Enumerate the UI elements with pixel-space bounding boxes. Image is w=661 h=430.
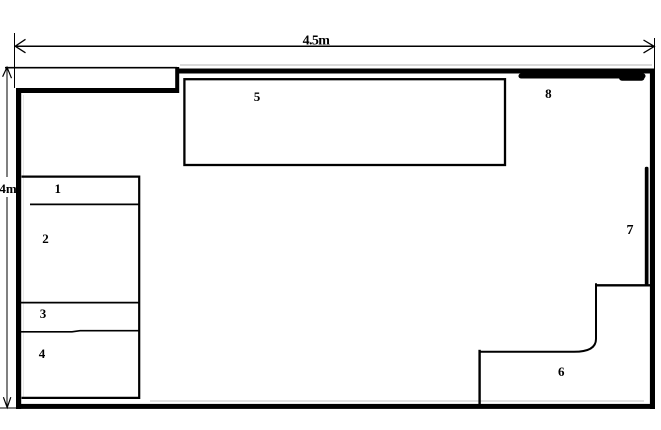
svg-text:3: 3: [40, 306, 47, 321]
svg-text:1: 1: [55, 181, 62, 196]
svg-text:4m: 4m: [0, 181, 17, 196]
svg-text:5: 5: [254, 89, 261, 104]
svg-text:4: 4: [39, 346, 46, 361]
svg-text:4.5m: 4.5m: [303, 34, 331, 49]
svg-text:2: 2: [42, 231, 49, 246]
svg-text:6: 6: [558, 364, 565, 379]
svg-text:8: 8: [545, 86, 552, 101]
svg-text:7: 7: [627, 223, 634, 238]
